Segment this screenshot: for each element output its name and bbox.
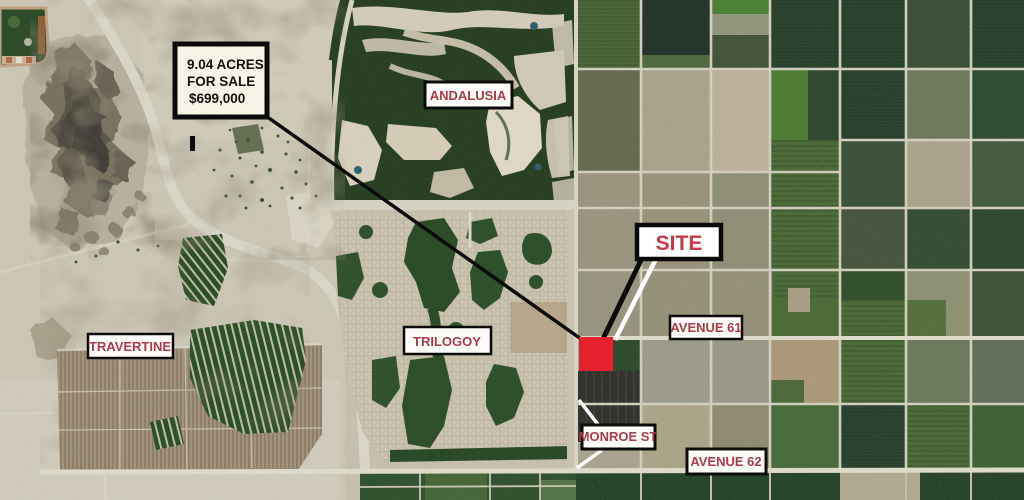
svg-text:SITE: SITE bbox=[656, 232, 703, 255]
svg-text:9.04 ACRES: 9.04 ACRES bbox=[187, 57, 264, 72]
svg-text:TRAVERTINE: TRAVERTINE bbox=[89, 339, 171, 354]
svg-text:FOR SALE: FOR SALE bbox=[187, 74, 255, 89]
svg-text:AVENUE 62: AVENUE 62 bbox=[690, 454, 761, 469]
svg-text:AVENUE 61: AVENUE 61 bbox=[670, 320, 741, 335]
svg-text:$699,000: $699,000 bbox=[189, 91, 245, 106]
svg-text:TRILOGOY: TRILOGOY bbox=[413, 334, 481, 349]
svg-text:MONROE ST: MONROE ST bbox=[579, 429, 658, 444]
svg-text:ANDALUSIA: ANDALUSIA bbox=[430, 88, 507, 103]
